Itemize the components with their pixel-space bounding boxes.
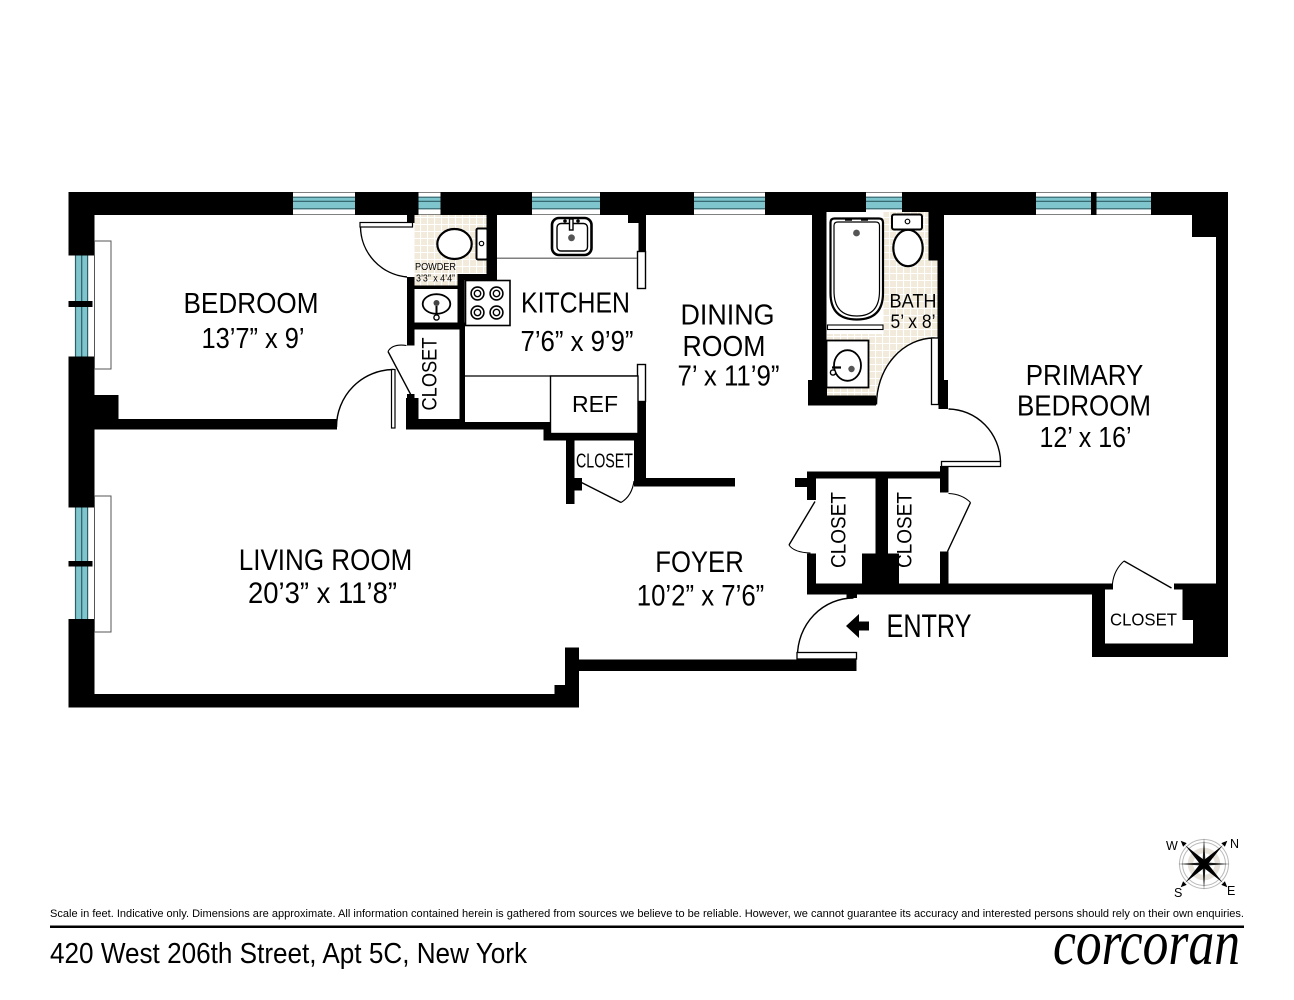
svg-text:7’ x 11’9”: 7’ x 11’9”: [678, 361, 780, 393]
svg-text:13’7” x 9’: 13’7” x 9’: [202, 323, 305, 355]
svg-text:POWDER: POWDER: [415, 261, 456, 273]
svg-text:420 West 206th Street, Apt 5C,: 420 West 206th Street, Apt 5C, New York: [50, 938, 528, 970]
svg-text:CLOSET: CLOSET: [894, 492, 917, 568]
svg-text:BEDROOM: BEDROOM: [1017, 391, 1151, 423]
svg-text:CLOSET: CLOSET: [828, 492, 851, 568]
svg-text:LIVING ROOM: LIVING ROOM: [239, 544, 413, 577]
svg-text:CLOSET: CLOSET: [419, 337, 442, 410]
svg-text:S: S: [1174, 886, 1182, 900]
svg-text:E: E: [1227, 884, 1235, 898]
svg-text:W: W: [1166, 839, 1178, 853]
svg-text:ROOM: ROOM: [683, 331, 766, 363]
svg-text:CLOSET: CLOSET: [576, 451, 633, 473]
svg-text:12’ x 16’: 12’ x 16’: [1040, 422, 1132, 454]
svg-text:REF: REF: [572, 391, 618, 417]
svg-text:20’3” x 11’8”: 20’3” x 11’8”: [248, 577, 397, 610]
svg-text:KITCHEN: KITCHEN: [521, 288, 630, 320]
svg-text:7’6” x 9’9”: 7’6” x 9’9”: [521, 326, 634, 358]
svg-text:FOYER: FOYER: [655, 546, 744, 579]
svg-text:PRIMARY: PRIMARY: [1026, 360, 1144, 392]
svg-text:BATH: BATH: [890, 291, 937, 313]
svg-text:BEDROOM: BEDROOM: [184, 288, 319, 320]
svg-text:CLOSET: CLOSET: [1110, 610, 1177, 630]
svg-text:3’3” x 4’4”: 3’3” x 4’4”: [416, 273, 455, 285]
svg-text:ENTRY: ENTRY: [887, 608, 972, 644]
svg-text:corcoran: corcoran: [1053, 907, 1240, 978]
svg-text:10’2” x 7’6”: 10’2” x 7’6”: [637, 580, 765, 613]
svg-text:N: N: [1230, 837, 1239, 851]
svg-text:DINING: DINING: [681, 300, 775, 332]
svg-text:5’ x 8’: 5’ x 8’: [891, 311, 936, 333]
